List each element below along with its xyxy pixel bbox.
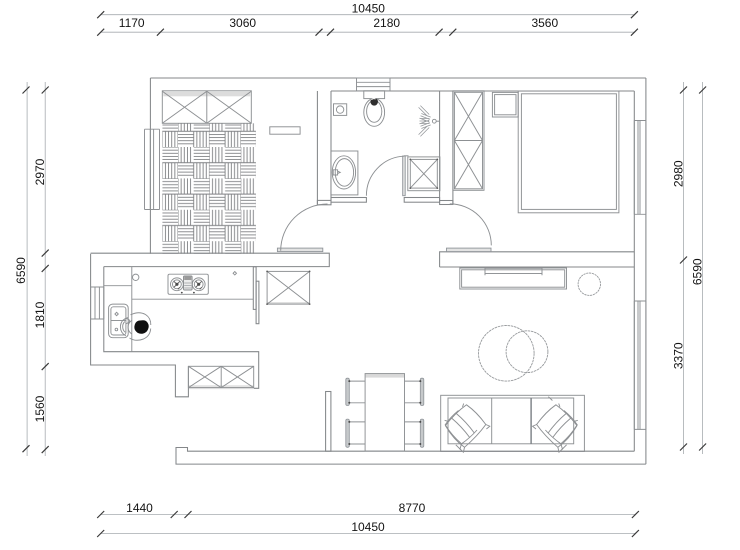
svg-text:6590: 6590 bbox=[691, 258, 705, 285]
svg-text:1560: 1560 bbox=[33, 395, 47, 422]
svg-text:3370: 3370 bbox=[672, 342, 686, 369]
svg-text:2180: 2180 bbox=[373, 16, 400, 30]
svg-text:6590: 6590 bbox=[14, 257, 28, 284]
svg-text:3060: 3060 bbox=[229, 16, 256, 30]
svg-text:2970: 2970 bbox=[33, 158, 47, 185]
svg-text:10450: 10450 bbox=[351, 520, 385, 534]
svg-text:1440: 1440 bbox=[126, 501, 153, 515]
svg-text:2980: 2980 bbox=[672, 160, 686, 187]
svg-text:3560: 3560 bbox=[531, 16, 558, 30]
svg-text:10450: 10450 bbox=[352, 2, 386, 16]
svg-text:1810: 1810 bbox=[33, 301, 47, 328]
svg-text:8770: 8770 bbox=[399, 501, 426, 515]
svg-text:1170: 1170 bbox=[119, 16, 145, 30]
